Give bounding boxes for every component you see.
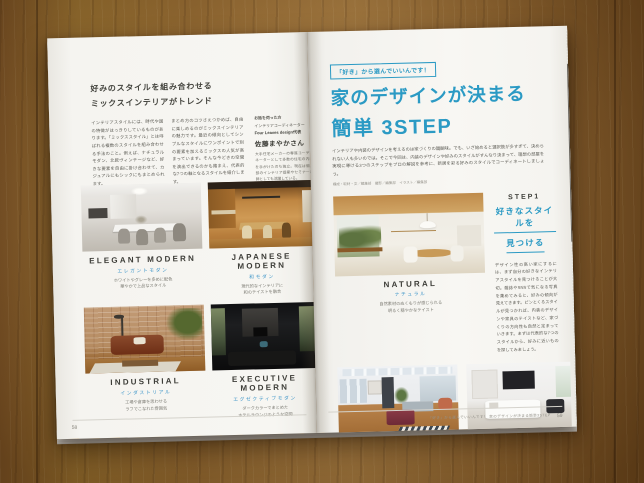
photo-of-magazine-on-table: 好みのスタイルを組み合わせる ミックスインテリアがトレンド インテリアスタイルに…	[0, 0, 644, 483]
step1-body: デザイン性の高い家にするには、まず自分の好きなインテリアスタイルを見つけることが…	[495, 260, 559, 355]
plant	[165, 308, 202, 341]
left-body-column-1: インテリアスタイルには、時代や国の特徴がはっきりしているものがあります。「ミック…	[91, 118, 165, 189]
style-card-natural: NATURAL ナチュラル 自然素材のぬくもりが感じられる明るく穏やかなテイスト	[333, 192, 487, 358]
style-name-ja: ナチュラル	[335, 289, 485, 300]
fireplace	[253, 327, 268, 336]
dark-section-page-edge	[567, 64, 577, 242]
style-desc: 現代的なインテリアに和のテイストを融合	[210, 281, 314, 297]
left-headline-line2: ミックスインテリアがトレンド	[91, 94, 213, 112]
style-name-ja: インダストリアル	[86, 387, 206, 397]
page-number-left: 58	[72, 425, 78, 431]
plants	[338, 224, 381, 251]
main-title-line1: 家のデザインが決まる	[330, 79, 553, 110]
photo-nordic-interior	[337, 364, 459, 433]
style-desc: 自然素材のぬくもりが感じられる明るく穏やかなテイスト	[336, 299, 486, 317]
photo-japanese-modern-interior	[208, 180, 314, 249]
photo-industrial-interior	[84, 305, 206, 374]
page-number-right: 59	[557, 413, 563, 419]
style-name-ja: エレガントモダン	[83, 265, 203, 275]
expert-credit-box: お話を伺った方 インテリアコーディネーター Four Leaves design…	[254, 114, 314, 184]
style-name-en: NATURAL	[335, 277, 485, 290]
style-card-japanese-modern: JAPANESE MODERN 和モダン 現代的なインテリアに和のテイストを融合	[208, 180, 315, 298]
style-card-industrial: INDUSTRIAL インダストリアル 工場や倉庫を思わせるラフでこなれた雰囲気	[84, 305, 207, 423]
style-desc: 工場や倉庫を思わせるラフでこなれた雰囲気	[86, 397, 206, 414]
step1-title-line2: 見つける	[506, 236, 545, 252]
credit-bio: 大手住宅メーカーの専属コーディネーターとして多数の住宅の内装を手がけたのち独立。…	[255, 150, 314, 183]
style-name-en: JAPANESE MODERN	[209, 251, 313, 272]
main-title-line2: 簡単 3STEP	[331, 107, 554, 141]
photo-executive-modern-interior	[211, 302, 317, 371]
credit-note: お話を伺った方	[254, 114, 312, 121]
magazine-spread: 好みのスタイルを組み合わせる ミックスインテリアがトレンド インテリアスタイルに…	[47, 26, 577, 440]
style-desc: ホワイトやグレーを多めに配色華やかで上品なスタイル	[83, 275, 203, 292]
floor-lamp	[114, 315, 124, 319]
left-headline: 好みのスタイルを組み合わせる ミックスインテリアがトレンド	[90, 78, 213, 111]
style-card-executive-modern: EXECUTIVE MODERN エグゼクティブモダン ダークカラーでまとめたホ…	[211, 302, 317, 420]
pendant-light	[242, 196, 279, 199]
credit-name: 佐藤まやかさん	[255, 137, 313, 148]
left-body-column-2: まとめ方のコツさえつかめば、自由に楽しめるのがミックスインテリアの魅力です。最近…	[171, 116, 245, 187]
style-name-en: ELEGANT MODERN	[83, 254, 203, 266]
wood-plank-seam	[36, 0, 38, 483]
left-page: 好みのスタイルを組み合わせる ミックスインテリアがトレンド インテリアスタイルに…	[47, 32, 317, 439]
style-name-ja: エグゼクティブモダン	[213, 394, 317, 404]
style-card-nordic: NORDIC 北欧 大胆な模様や色使いも楽しめるアレンジ自在なスタイル	[337, 364, 460, 433]
style-name-ja: 和モダン	[210, 271, 314, 281]
striped-rug	[395, 426, 450, 433]
wood-plank-seam	[614, 0, 616, 483]
pendant-lamp	[419, 221, 436, 229]
credits-line: 構成・取材・文／編集部 撮影／編集部 イラスト／編集部	[333, 177, 555, 187]
style-card-elegant-modern: ELEGANT MODERN エレガントモダン ホワイトやグレーを多めに配色華や…	[81, 183, 204, 301]
intro-paragraph: インテリアや内装のデザインを考えるのは家づくりの醍醐味。でも、いざ始めると選択肢…	[332, 142, 545, 178]
step1-block: STEP1 好きなスタイルを 見つける デザイン性の高い家にするには、まず自分の…	[493, 191, 559, 355]
style-name-en: INDUSTRIAL	[86, 376, 206, 388]
style-card-simple-modern: SIMPLE MODERN シンプルモダン モノトーンカラーで統一機能を兼ねたシ…	[466, 361, 573, 432]
photo-elegant-modern-interior	[81, 183, 203, 252]
step1-title-line1: 好きなスタイルを	[493, 204, 556, 233]
right-page: 「好き」から選んでいいんです！ 家のデザインが決まる 簡単 3STEP インテリ…	[307, 26, 577, 433]
style-photo-grid: ELEGANT MODERN エレガントモダン ホワイトやグレーを多めに配色華や…	[81, 180, 317, 423]
tagline-badge: 「好き」から選んでいいんです！	[330, 62, 436, 80]
tv-screen	[503, 371, 535, 390]
style-desc: ダークカラーでまとめたホテルラウンジのような空間	[213, 404, 317, 420]
style-name-en: EXECUTIVE MODERN	[212, 373, 316, 394]
photo-natural-interior	[333, 192, 485, 276]
credit-organization: Four Leaves design代表	[254, 129, 312, 136]
left-intro-columns: インテリアスタイルには、時代や国の特徴がはっきりしているものがあります。「ミック…	[91, 114, 314, 188]
